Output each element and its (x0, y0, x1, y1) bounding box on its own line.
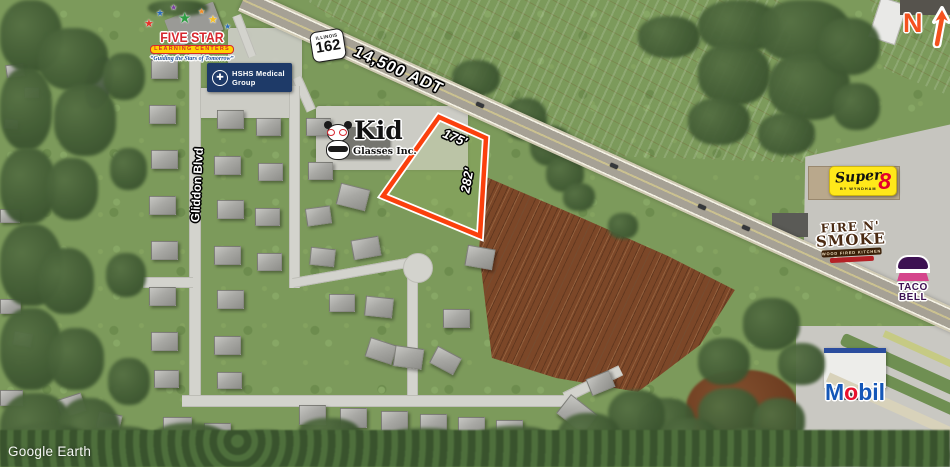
taco-bell-line2: BELL (885, 292, 941, 303)
star-icon: ★ (156, 9, 164, 18)
shield-route-number: 162 (311, 37, 345, 57)
panda-icon (324, 124, 354, 162)
fire-n-smoke-ribbon (830, 256, 874, 263)
star-icon: ★ (208, 15, 218, 26)
five-star-banner: LEARNING CENTERS (150, 45, 234, 54)
north-arrow-icon (929, 6, 950, 48)
five-star-tagline: “Guiding the Stars of Tomorrow” (142, 56, 242, 62)
hshs-cross-icon: ✚ (212, 70, 228, 86)
five-star-logo: ★ ★ ★ ★ ★ ★ ★ FIVE STAR LEARNING CENTERS… (142, 3, 242, 67)
star-icon: ★ (170, 4, 177, 12)
hshs-logo: ✚ HSHS Medical Group (207, 63, 292, 92)
kid-glasses-logo: Kid Glasses Inc. (324, 116, 434, 166)
glasses-icon (339, 129, 347, 136)
super8-logo: Super BY WYNDHAM 8 (829, 166, 897, 196)
car (476, 102, 485, 109)
mobil-part1: M (825, 379, 844, 405)
car (698, 204, 707, 211)
kid-glasses-name: Kid (354, 116, 403, 145)
glasses-icon (327, 129, 335, 136)
bell-body (897, 273, 929, 281)
route-162-shield: ILLINOIS 162 (309, 28, 347, 64)
north-label: N (903, 10, 923, 37)
five-star-name: FIVE STAR (150, 29, 234, 45)
fire-n-smoke-logo: FIRE N' SMOKE WOOD FIRED KITCHEN (813, 218, 889, 266)
taco-bell-logo: TACO BELL (885, 257, 941, 307)
bell-band (896, 269, 930, 273)
mobil-part2: bil (858, 379, 885, 405)
aerial-map-canvas: 14,500 ADT ILLINOIS 162 175' 282' Gliddo… (0, 0, 950, 467)
taco-bell-bell-icon (896, 257, 930, 279)
bell-dome (898, 257, 928, 269)
google-earth-watermark: Google Earth (8, 444, 91, 459)
star-icon: ★ (178, 11, 191, 26)
treeline (0, 430, 950, 467)
mobil-accent-o: o (844, 379, 858, 405)
north-indicator: N (903, 6, 949, 52)
super8-name: Super (834, 167, 881, 186)
car (742, 225, 751, 232)
super8-byline: BY WYNDHAM (840, 187, 877, 191)
car (610, 163, 619, 170)
panda-arm (328, 146, 348, 152)
mobil-logo: Mobil (825, 379, 885, 406)
star-icon: ★ (198, 8, 205, 16)
hshs-name: HSHS Medical Group (232, 69, 287, 87)
super8-numeral: 8 (878, 168, 891, 195)
kid-glasses-subtitle: Glasses Inc. (353, 146, 417, 157)
